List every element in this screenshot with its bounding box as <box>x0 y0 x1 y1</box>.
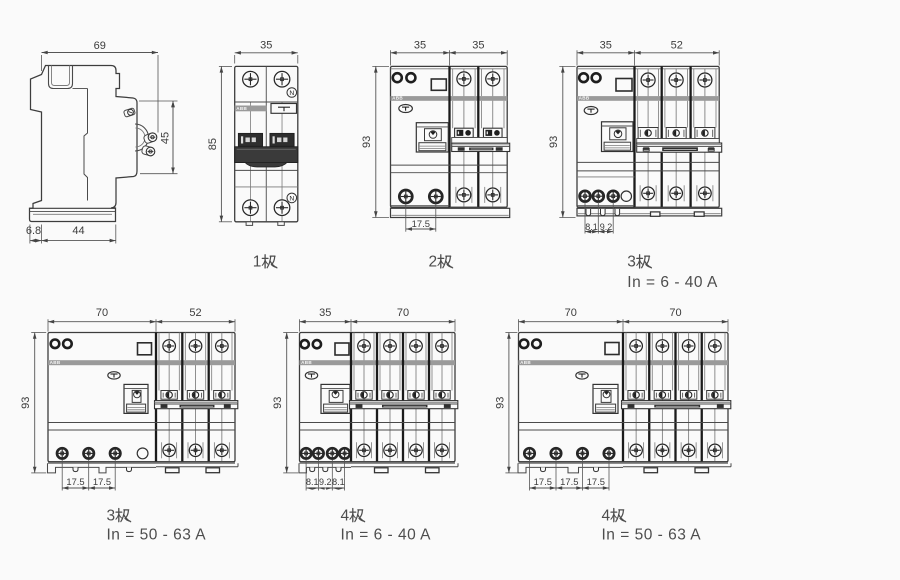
svg-text:93: 93 <box>361 136 373 148</box>
svg-text:ABB: ABB <box>236 106 247 111</box>
svg-text:93: 93 <box>494 397 506 409</box>
svg-text:44: 44 <box>72 225 84 237</box>
svg-text:70: 70 <box>96 307 108 319</box>
svg-text:17.5: 17.5 <box>412 218 430 229</box>
svg-text:17.5: 17.5 <box>66 476 84 487</box>
svg-text:2: 2 <box>429 254 438 271</box>
svg-text:3: 3 <box>627 254 636 271</box>
svg-text:70: 70 <box>565 307 577 319</box>
svg-text:17.5: 17.5 <box>534 476 552 487</box>
svg-text:6.8: 6.8 <box>26 225 41 237</box>
svg-text:8.1: 8.1 <box>332 477 345 487</box>
svg-text:70: 70 <box>397 307 409 319</box>
svg-text:17.5: 17.5 <box>93 476 111 487</box>
svg-text:52: 52 <box>189 307 201 319</box>
svg-text:In = 50 - 63 A: In = 50 - 63 A <box>107 526 207 543</box>
svg-text:N: N <box>289 90 294 97</box>
svg-text:35: 35 <box>414 40 426 52</box>
svg-text:N: N <box>289 195 294 202</box>
svg-text:85: 85 <box>207 138 219 150</box>
svg-text:3: 3 <box>107 507 116 524</box>
svg-text:In = 6 - 40 A: In = 6 - 40 A <box>341 526 432 543</box>
svg-text:45: 45 <box>159 132 171 144</box>
svg-text:ABB: ABB <box>301 360 312 365</box>
svg-text:ABB: ABB <box>520 360 531 365</box>
svg-text:35: 35 <box>472 40 484 52</box>
svg-text:ABB: ABB <box>579 96 590 101</box>
svg-text:4: 4 <box>341 507 350 524</box>
svg-text:93: 93 <box>548 136 560 148</box>
svg-text:17.5: 17.5 <box>560 476 578 487</box>
svg-text:In = 6 - 40 A: In = 6 - 40 A <box>627 274 718 291</box>
svg-text:69: 69 <box>94 40 106 52</box>
svg-text:In = 50 - 63 A: In = 50 - 63 A <box>602 526 702 543</box>
svg-text:4: 4 <box>602 507 611 524</box>
svg-text:35: 35 <box>260 40 272 52</box>
svg-text:8.1: 8.1 <box>585 222 598 232</box>
svg-text:17.5: 17.5 <box>587 476 605 487</box>
svg-text:35: 35 <box>600 40 612 52</box>
svg-text:52: 52 <box>671 40 683 52</box>
svg-text:ABB: ABB <box>392 96 403 101</box>
svg-text:35: 35 <box>319 307 331 319</box>
svg-text:9.2: 9.2 <box>600 222 613 232</box>
svg-text:70: 70 <box>669 307 681 319</box>
svg-text:8.1: 8.1 <box>306 477 319 487</box>
svg-text:93: 93 <box>272 397 284 409</box>
svg-text:9.2: 9.2 <box>319 477 332 487</box>
svg-text:93: 93 <box>20 397 32 409</box>
svg-text:ABB: ABB <box>50 360 61 365</box>
svg-text:1: 1 <box>253 254 262 271</box>
